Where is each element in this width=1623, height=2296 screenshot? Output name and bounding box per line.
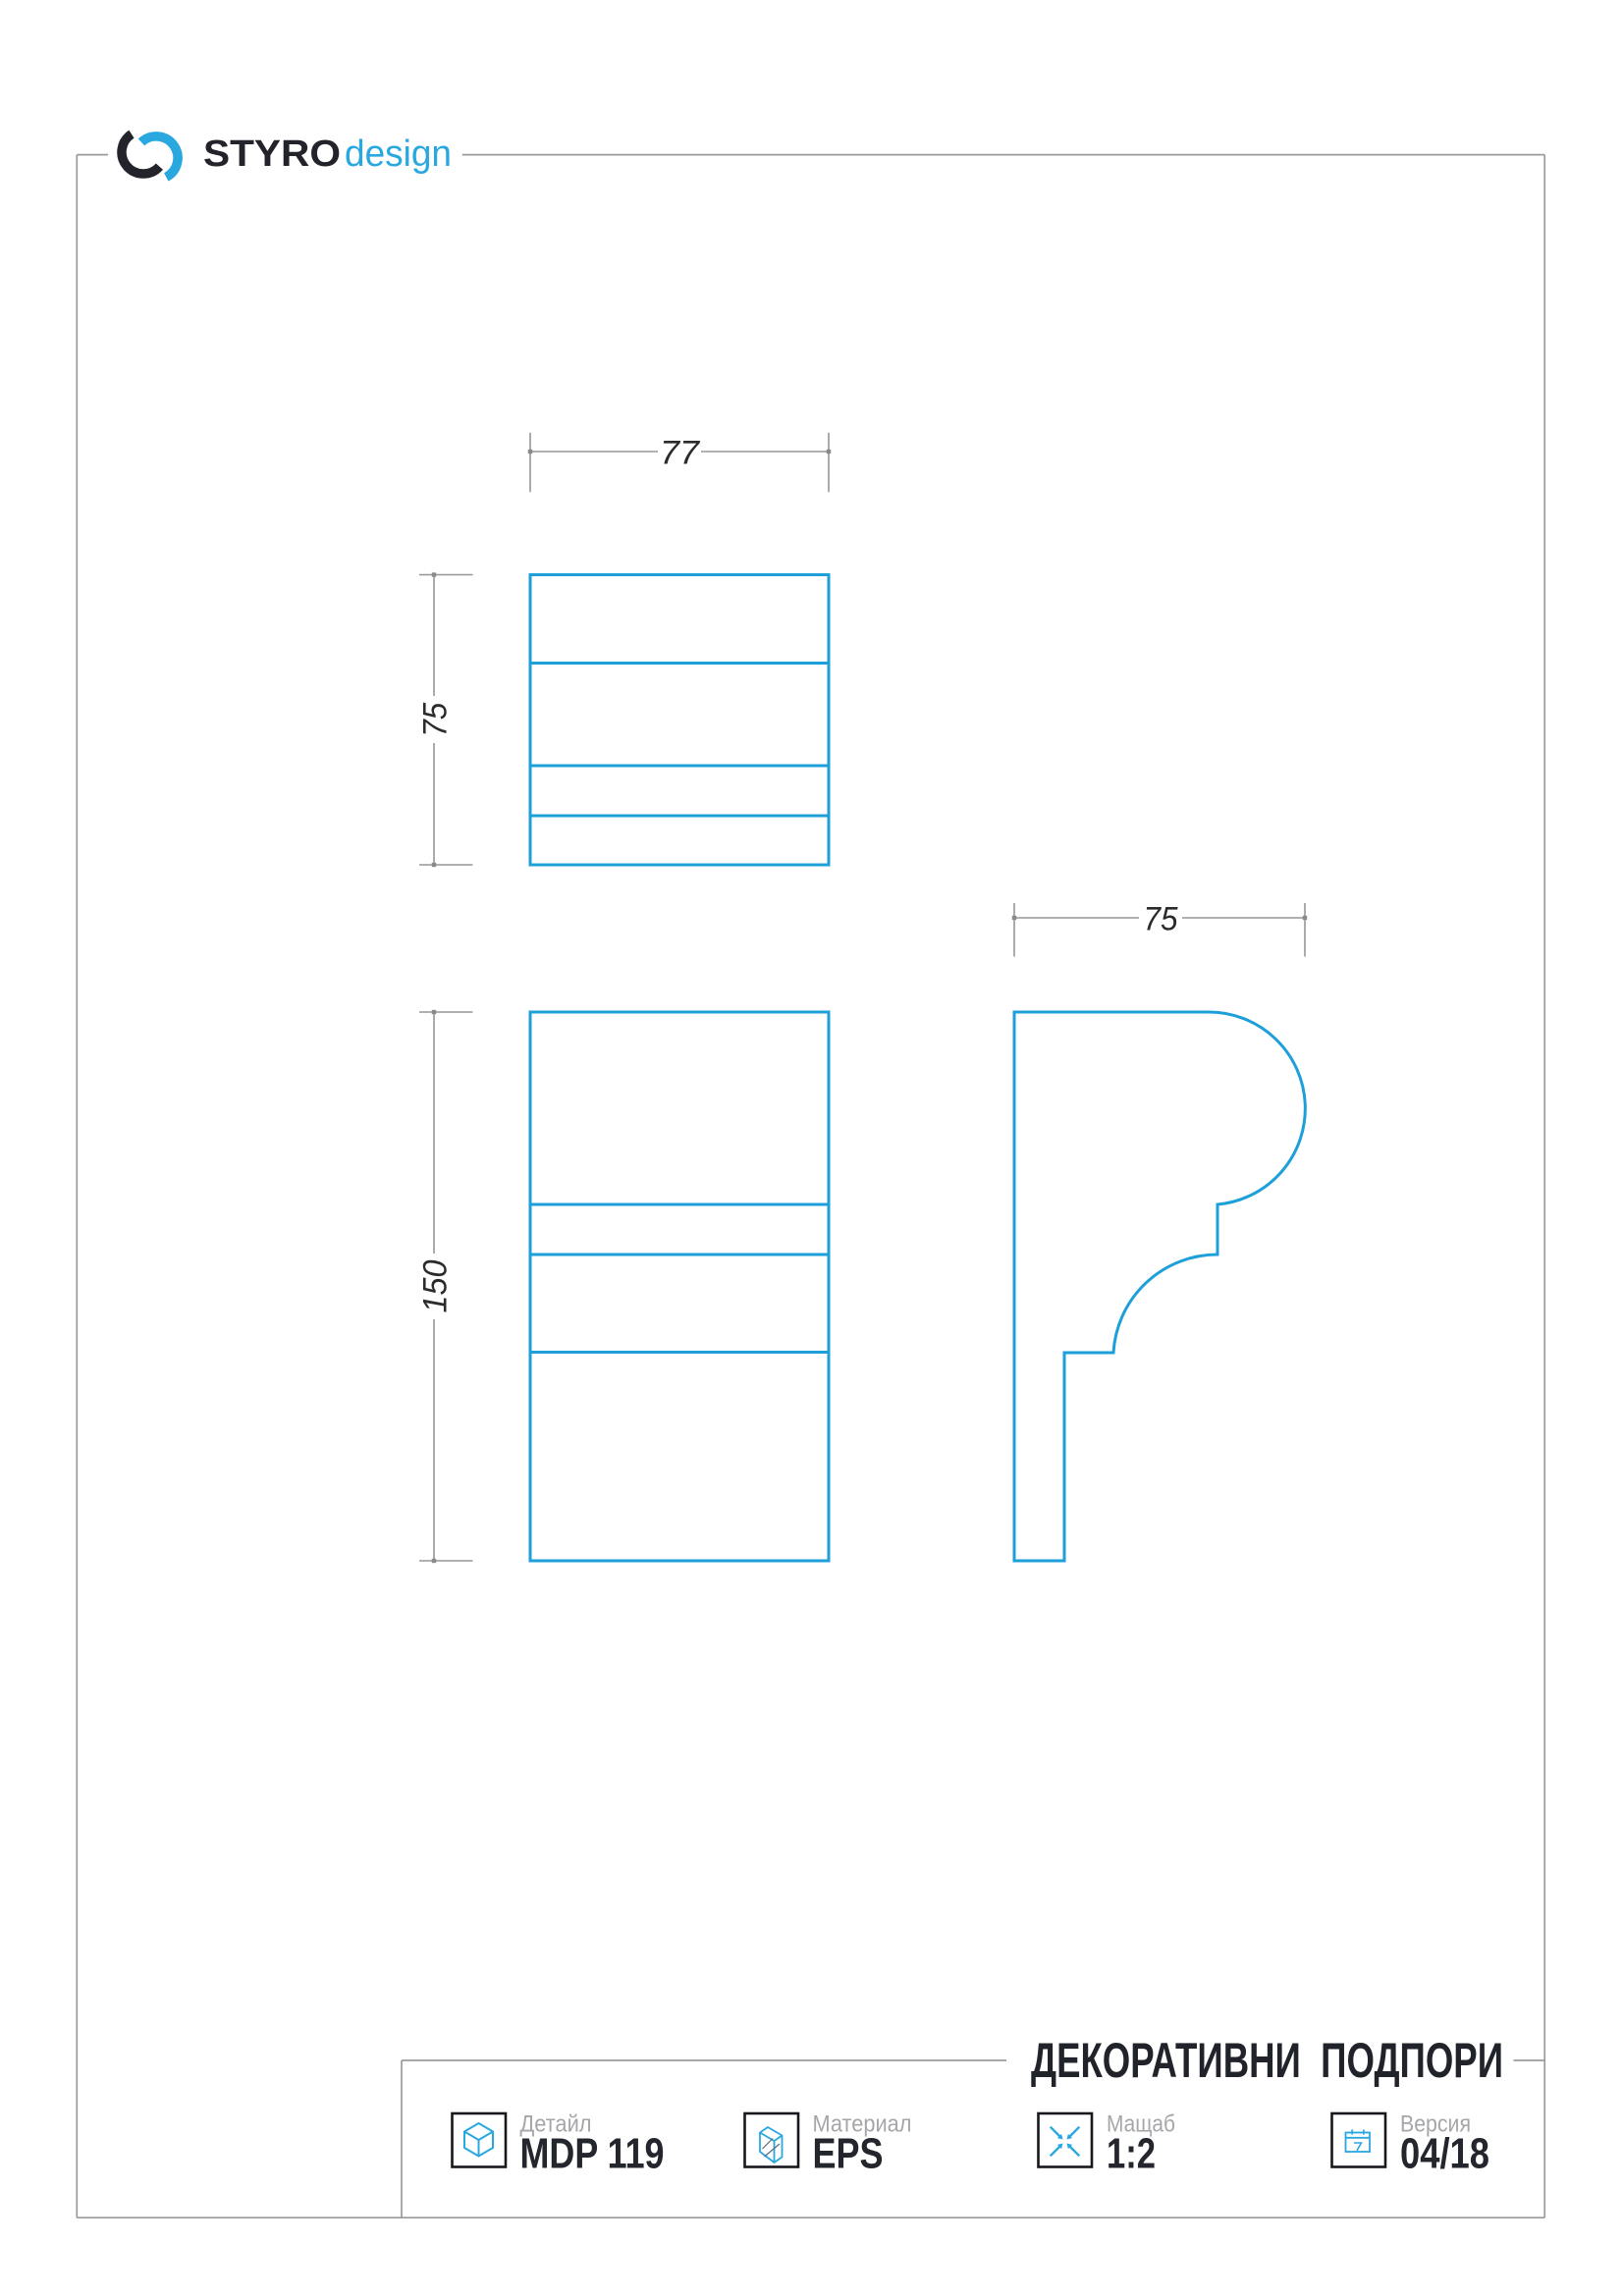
svg-text:ДЕКОРАТИВНИ ПОДПОРИ: ДЕКОРАТИВНИ ПОДПОРИ: [1031, 2033, 1503, 2088]
svg-text:75: 75: [1144, 900, 1178, 937]
svg-text:STYRO: STYRO: [203, 133, 341, 175]
svg-text:75: 75: [416, 703, 454, 737]
svg-text:MDP 119: MDP 119: [520, 2130, 665, 2178]
svg-text:design: design: [345, 133, 452, 175]
svg-text:1:2: 1:2: [1107, 2130, 1156, 2178]
svg-text:04/18: 04/18: [1400, 2130, 1489, 2178]
svg-text:77: 77: [660, 434, 700, 471]
svg-text:EPS: EPS: [813, 2130, 884, 2178]
svg-text:150: 150: [416, 1259, 454, 1312]
